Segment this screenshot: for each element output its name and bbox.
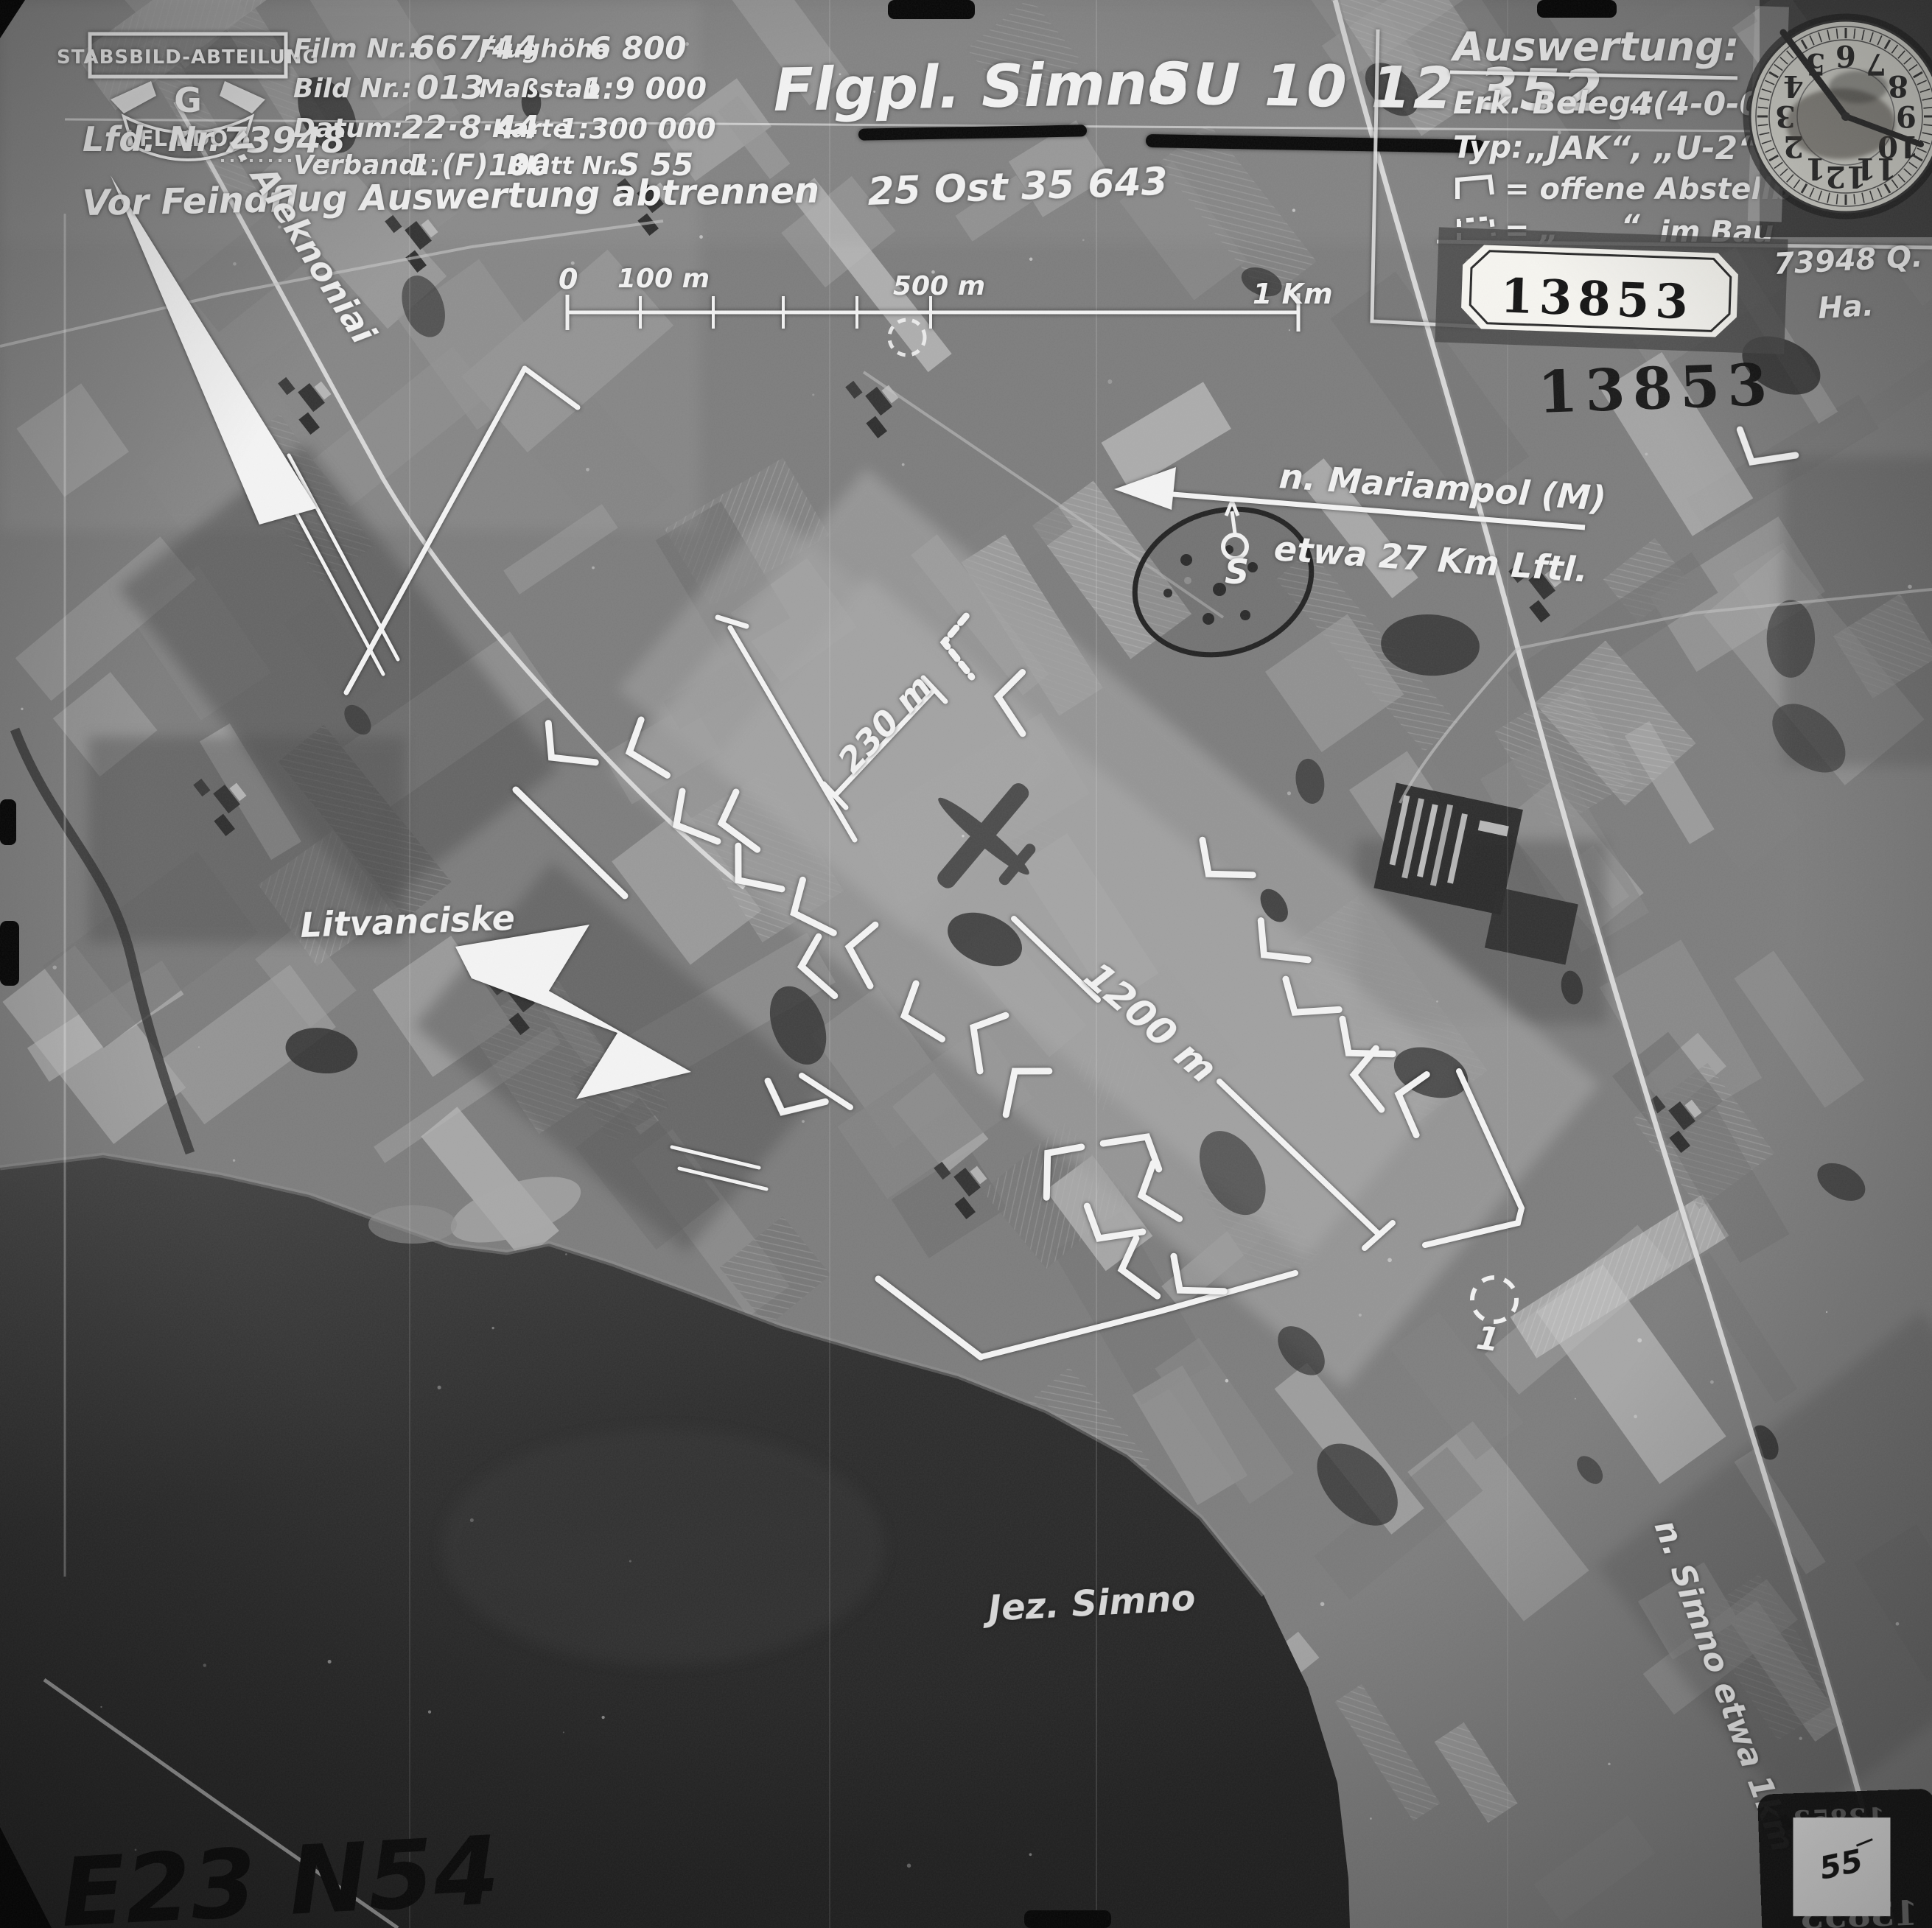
photo-canvas: 0 100 m 500 m 1 Km STABSBILD-ABTEILUNG G… bbox=[0, 0, 1932, 1928]
aerial-photo: 0 100 m 500 m 1 Km STABSBILD-ABTEILUNG G… bbox=[0, 0, 1932, 1928]
vignette bbox=[0, 0, 1932, 1928]
